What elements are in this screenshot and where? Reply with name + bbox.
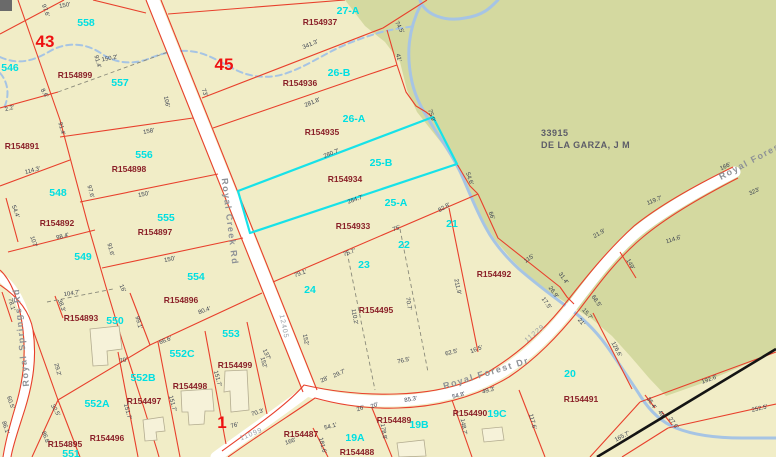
parcel-id-label: R154495	[359, 305, 394, 315]
lot-number-label: 556	[135, 149, 153, 161]
parcel-id-label: R154492	[477, 269, 512, 279]
parcel-id-label: R154499	[218, 360, 253, 370]
lot-number-label: 553	[222, 328, 240, 340]
parcel-id-label: R154895	[48, 439, 83, 449]
parcel-id-label: R154893	[64, 313, 99, 323]
parcel-id-label: R154891	[5, 141, 40, 151]
owner-account: 33915	[541, 128, 569, 138]
lot-number-label: 19C	[487, 408, 507, 420]
parcel-id-label: R154899	[58, 70, 93, 80]
lot-number-label: 552A	[84, 398, 110, 410]
parcel-id-label: R154490	[453, 408, 488, 418]
lot-number-label: 555	[157, 212, 175, 224]
lot-number-label: 27-A	[337, 5, 360, 17]
lot-number-label: 21	[446, 218, 458, 230]
lot-number-label: 20	[564, 368, 576, 380]
lot-number-label: 550	[106, 315, 124, 327]
parcel-id-label: R154487	[284, 429, 319, 439]
lot-number-label: 19B	[409, 419, 429, 431]
lot-number-label: 554	[187, 271, 205, 283]
parcel-id-label: R154488	[340, 447, 375, 457]
parcel-id-label: R154489	[377, 415, 412, 425]
lot-number-label: 22	[398, 239, 410, 251]
lot-number-label: 548	[49, 187, 67, 199]
parcel-id-label: R154491	[564, 394, 599, 404]
lot-number-label: 557	[111, 77, 129, 89]
lot-number-label: 23	[358, 259, 370, 271]
lot-number-label: 19A	[345, 432, 365, 444]
lot-number-label: 546	[1, 62, 19, 74]
block-number-label: 45	[215, 55, 234, 74]
parcel-id-label: R154496	[90, 433, 125, 443]
parcel-id-label: R154937	[303, 17, 338, 27]
map-canvas[interactable]: 33915 DE LA GARZA, J M 150'150.2'2.2'8.6…	[0, 0, 776, 457]
parcel-id-label: R154498	[173, 381, 208, 391]
lot-number-label: 26-B	[328, 67, 351, 79]
lot-number-label: 25-A	[385, 197, 408, 209]
lot-number-label: 551	[62, 448, 80, 457]
parcel-map-viewport[interactable]: 33915 DE LA GARZA, J M 150'150.2'2.2'8.6…	[0, 0, 776, 457]
parcel-id-label: R154936	[283, 78, 318, 88]
parcel-id-label: R154933	[336, 221, 371, 231]
parcel-id-label: R154935	[305, 127, 340, 137]
block-number-label: 1	[217, 413, 226, 432]
lot-number-label: 24	[304, 284, 316, 296]
lot-number-label: 26-A	[343, 113, 366, 125]
parcel-id-label: R154892	[40, 218, 75, 228]
parcel-id-label: R154898	[112, 164, 147, 174]
block-number-label: 43	[36, 32, 55, 51]
lot-number-label: 25-B	[370, 157, 393, 169]
parcel-id-label: R154934	[328, 174, 363, 184]
parcel-id-label: R154896	[164, 295, 199, 305]
dark-structure	[0, 0, 12, 11]
parcel-id-label: R154497	[127, 396, 162, 406]
lot-number-label: 549	[74, 251, 92, 263]
parcel-id-label: R154897	[138, 227, 173, 237]
lot-number-label: 552C	[169, 348, 195, 360]
lot-number-label: 552B	[130, 372, 156, 384]
owner-name: DE LA GARZA, J M	[541, 140, 630, 150]
lot-number-label: 558	[77, 17, 95, 29]
